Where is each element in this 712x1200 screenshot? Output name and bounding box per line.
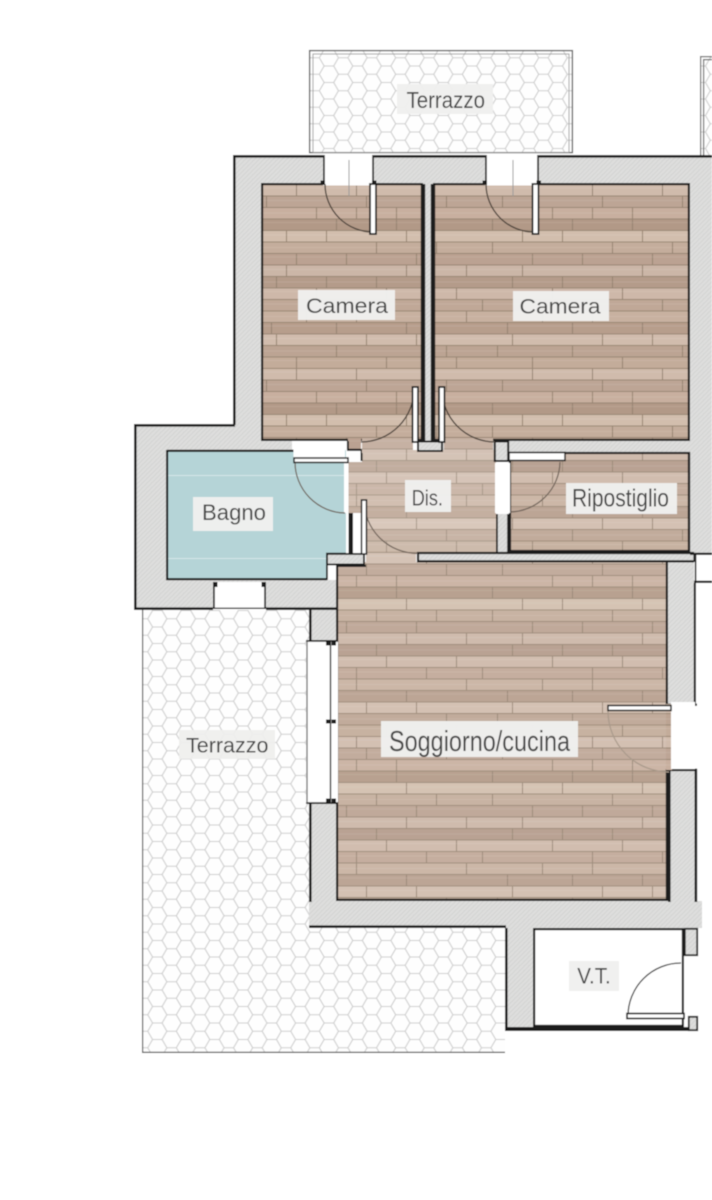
svg-text:Terrazzo: Terrazzo [407, 87, 486, 113]
svg-text:Bagno: Bagno [202, 500, 266, 525]
svg-text:Camera: Camera [306, 295, 388, 318]
svg-text:Soggiorno/cucina: Soggiorno/cucina [389, 726, 571, 758]
svg-text:Dis.: Dis. [412, 486, 443, 511]
svg-text:V.T.: V.T. [577, 964, 611, 989]
svg-text:Camera: Camera [520, 296, 601, 319]
svg-text:Terrazzo: Terrazzo [186, 733, 268, 757]
svg-text:Ripostiglio: Ripostiglio [572, 486, 669, 513]
